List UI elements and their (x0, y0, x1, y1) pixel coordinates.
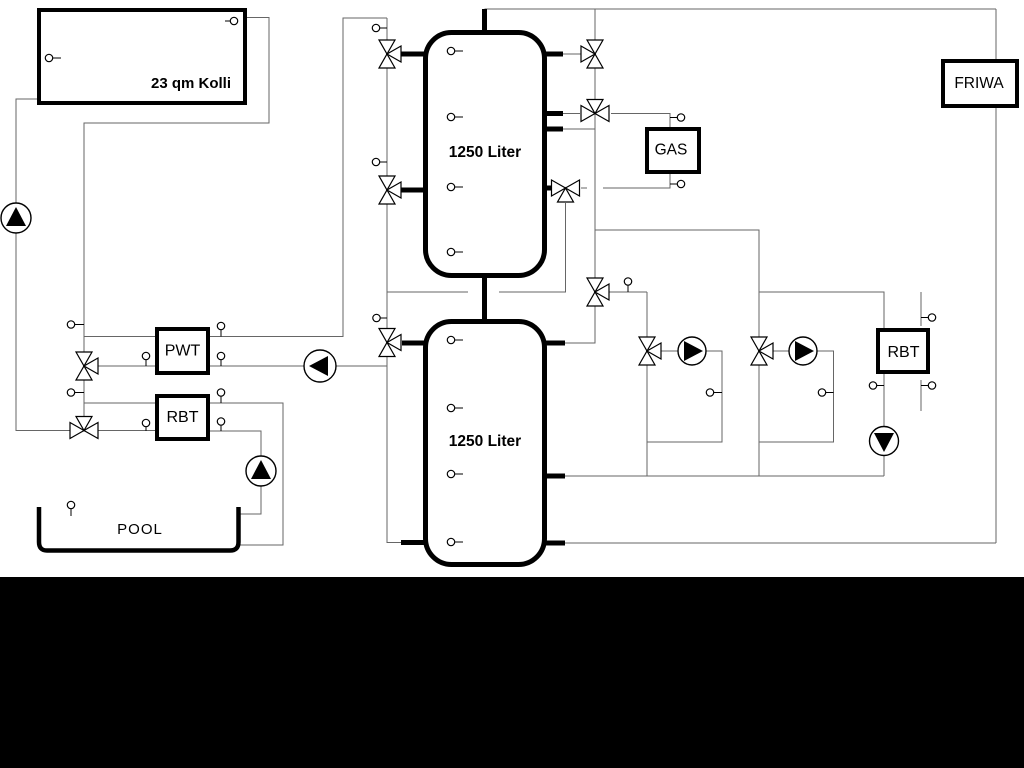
svg-text:RBT: RBT (167, 409, 199, 426)
svg-text:PWT: PWT (165, 343, 201, 360)
svg-text:POOL: POOL (117, 521, 163, 538)
svg-text:1250 Liter: 1250 Liter (449, 433, 521, 450)
svg-text:1250 Liter: 1250 Liter (449, 144, 521, 161)
svg-text:FRIWA: FRIWA (954, 75, 1004, 92)
svg-text:23 qm Kolli: 23 qm Kolli (151, 75, 231, 92)
svg-text:GAS: GAS (655, 141, 688, 158)
svg-text:RBT: RBT (888, 344, 920, 361)
